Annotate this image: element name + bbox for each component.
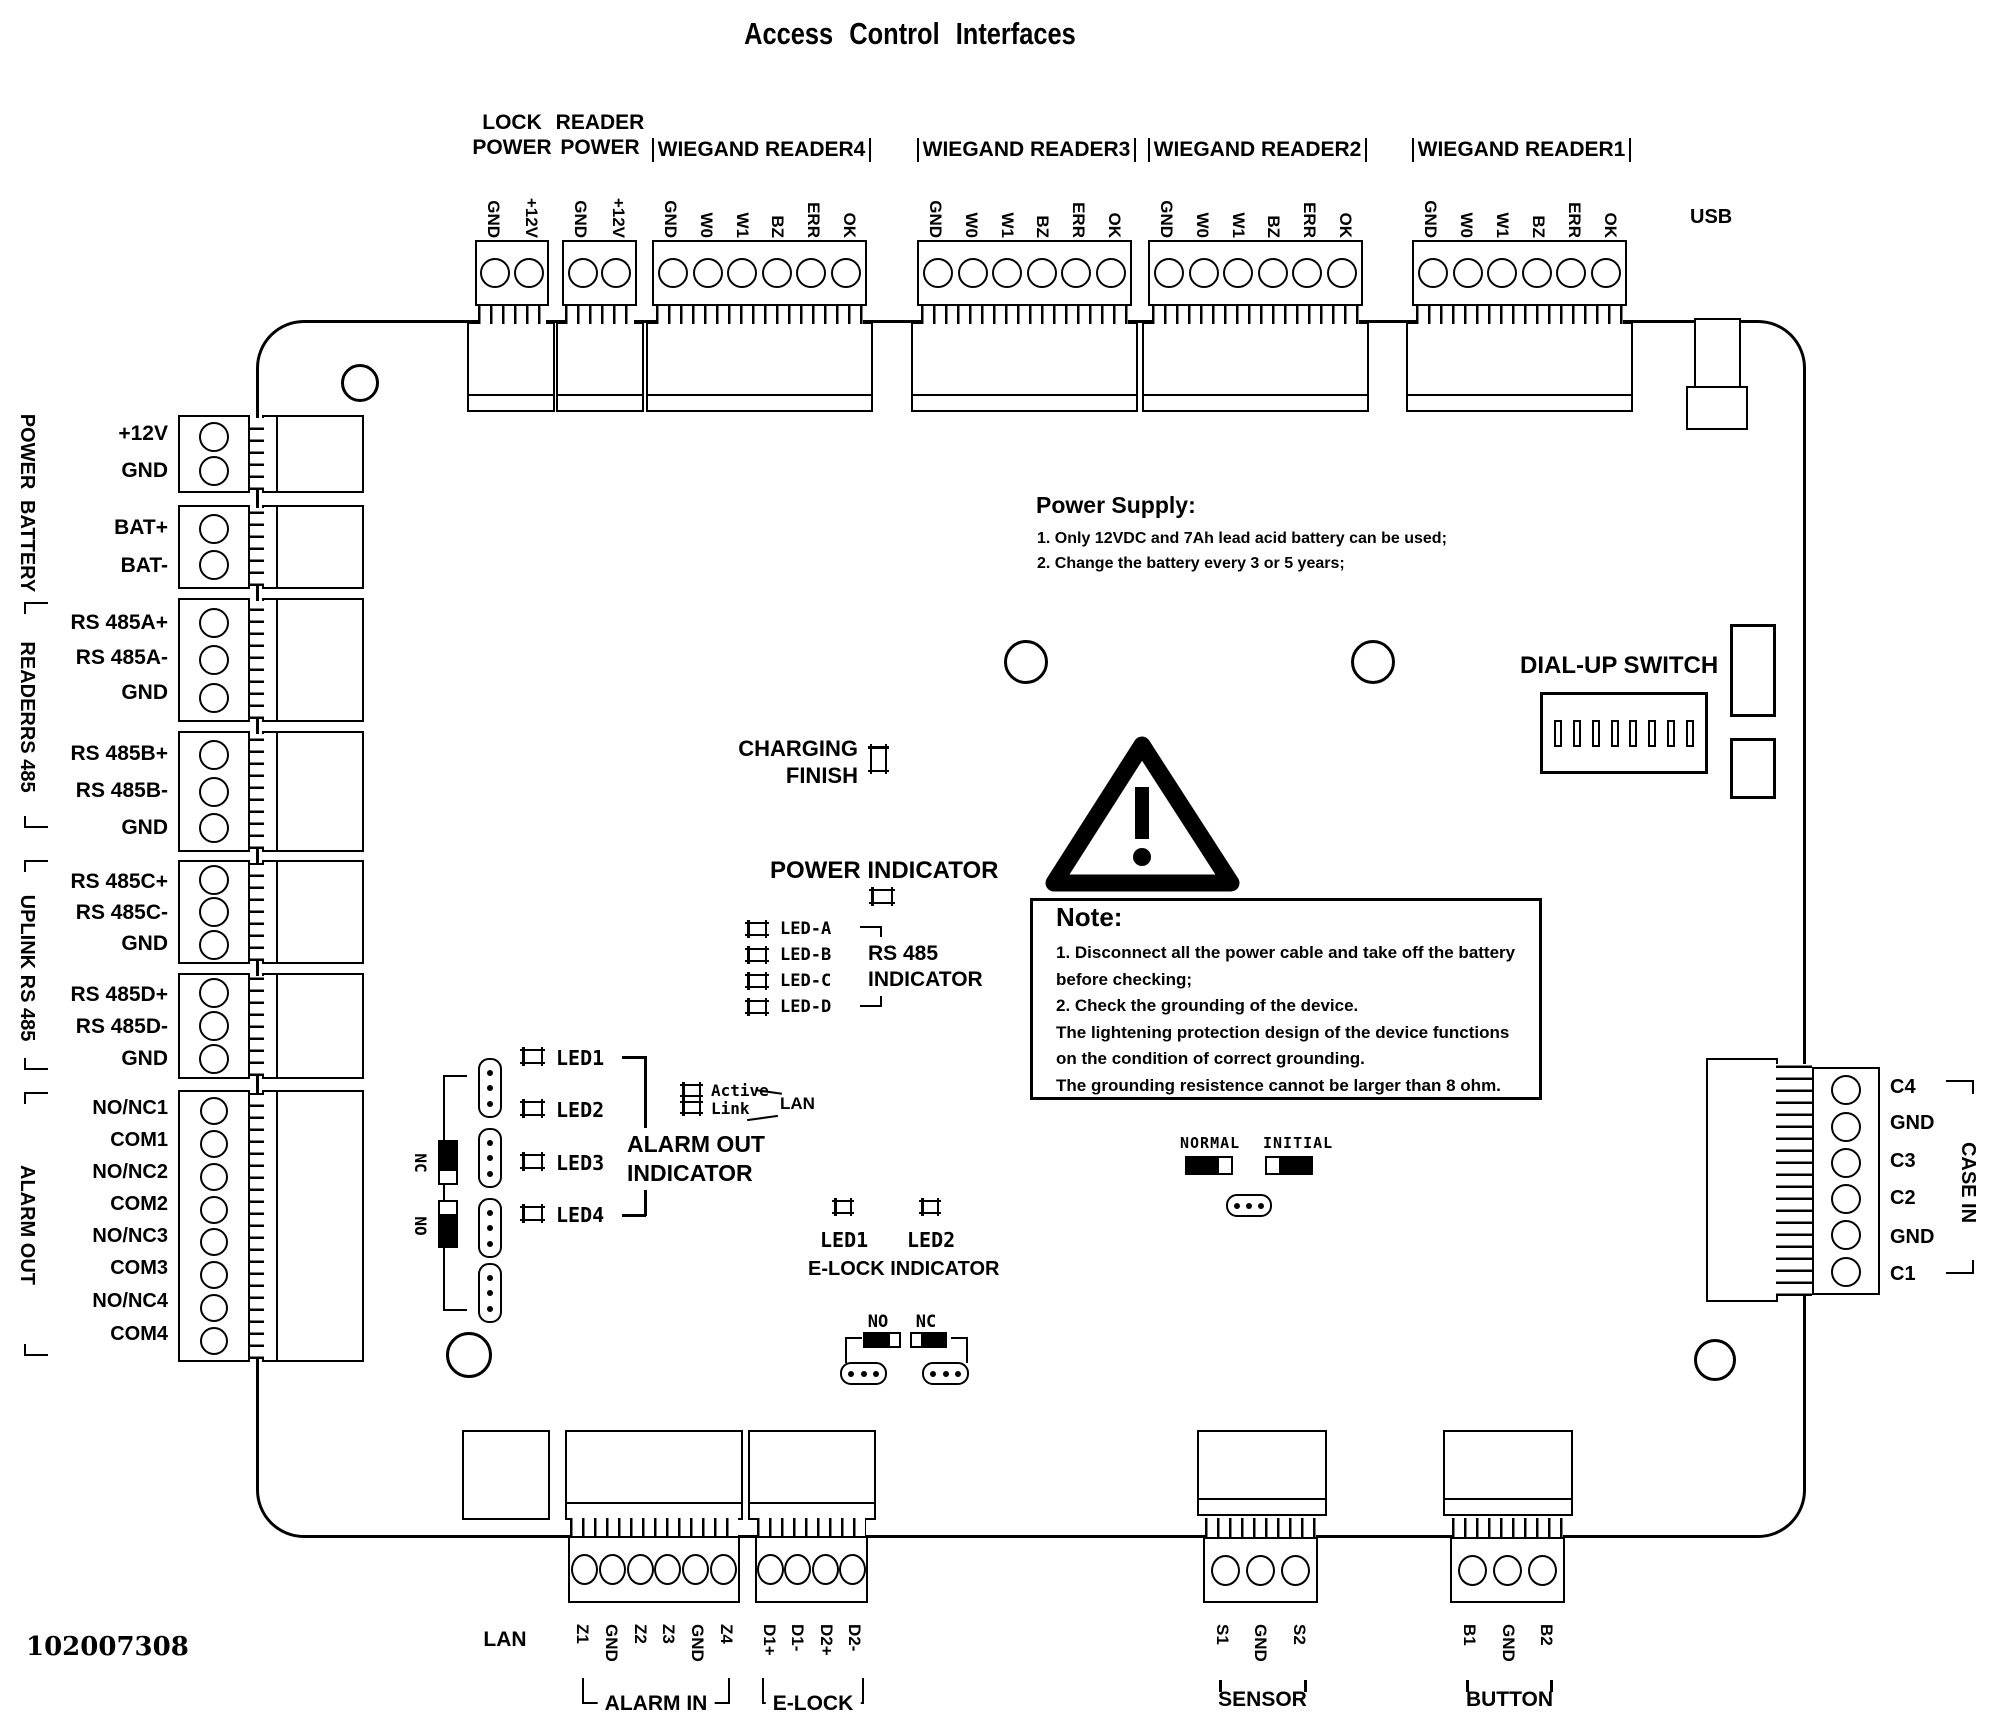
pin-label: +12V	[608, 150, 628, 238]
led-b-icon	[745, 948, 769, 962]
mode-jumper	[1226, 1194, 1272, 1217]
pin-label: COM2	[20, 1193, 168, 1216]
bracket-mark	[860, 996, 882, 1007]
lan-active-led-icon	[680, 1084, 703, 1097]
led-d-icon	[745, 1000, 769, 1014]
mounting-hole	[1351, 640, 1395, 684]
power-supply-item: 2. Change the battery every 3 or 5 years…	[1037, 555, 1345, 573]
battery-socket	[262, 505, 364, 589]
pin-label: OK	[1335, 150, 1355, 238]
rs485-indicator-label: INDICATOR	[868, 968, 983, 992]
pin-label: GND	[20, 681, 168, 705]
mounting-hole	[446, 1332, 492, 1378]
pin-label: W1	[1492, 150, 1512, 238]
sensor-terminal	[1203, 1537, 1318, 1603]
rs485c-socket	[262, 860, 364, 964]
pin-label: RS 485C+	[20, 870, 168, 894]
pin-label: GND	[660, 150, 680, 238]
bracket-mark	[845, 1337, 862, 1363]
pin-label: C2	[1890, 1187, 1916, 1210]
pin-label: RS 485D+	[20, 983, 168, 1007]
pin-label: BAT-	[20, 554, 168, 578]
e-lock-terminal	[755, 1536, 868, 1603]
no-label: NO	[410, 1203, 430, 1249]
rs485d-socket	[262, 973, 364, 1079]
pin-label: GND	[570, 150, 590, 238]
charging-finish-label: CHARGINGFINISH	[700, 735, 858, 789]
alarm2-jumper	[478, 1128, 502, 1188]
button-terminal	[1450, 1537, 1565, 1603]
alarm-in-socket	[565, 1430, 743, 1520]
pin-label: RS 485D-	[20, 1015, 168, 1039]
wiegand4-socket	[646, 322, 873, 412]
led2-label: LED2	[556, 1098, 604, 1122]
normal-label: NORMAL	[1180, 1134, 1240, 1152]
connector-teeth	[1452, 1518, 1563, 1538]
pin-label: OK	[1600, 150, 1620, 238]
pin-label: RS 485A-	[20, 646, 168, 670]
pin-label: COM1	[20, 1129, 168, 1152]
sensor-socket	[1197, 1430, 1327, 1516]
connector-teeth	[570, 1518, 738, 1538]
alarm-in-label: ALARM IN	[598, 1692, 715, 1716]
pin-label: GND	[20, 816, 168, 840]
dial-up-switch-label: DIAL-UP SWITCH	[1520, 652, 1718, 680]
e-lock-bracket: E-LOCK	[762, 1678, 864, 1704]
lan-link-led-icon	[680, 1101, 703, 1114]
pin-label: GND	[483, 150, 503, 238]
alarm-in-bracket: ALARM IN	[582, 1678, 730, 1704]
led-d-label: LED-D	[780, 997, 831, 1017]
pin-label: BAT+	[20, 516, 168, 540]
case-in-socket	[1706, 1058, 1778, 1302]
dip-slot	[1686, 720, 1694, 747]
pin-label: W0	[696, 150, 716, 238]
dip-slot	[1667, 720, 1675, 747]
e-lock-label: E-LOCK	[766, 1692, 861, 1716]
pin-label: NO/NC1	[20, 1097, 168, 1120]
led-c-label: LED-C	[780, 971, 831, 991]
warning-icon	[1045, 735, 1240, 893]
elock-nc-switch	[910, 1332, 947, 1348]
pin-label: NO/NC4	[20, 1290, 168, 1313]
pin-label: W0	[1456, 150, 1476, 238]
pin-label: W0	[1192, 150, 1212, 238]
initial-switch	[1265, 1156, 1313, 1175]
button-label: BUTTON	[1462, 1688, 1557, 1712]
pin-label: BZ	[1263, 150, 1283, 238]
connector-teeth	[565, 304, 634, 324]
mounting-hole	[1004, 640, 1048, 684]
pin-label: BZ	[1528, 150, 1548, 238]
led4-label: LED4	[556, 1203, 604, 1227]
page-title: Access Control Interfaces	[656, 16, 1164, 52]
lock-power-socket	[467, 322, 555, 412]
rs485b-socket	[262, 731, 364, 852]
alarm-out-terminal	[178, 1090, 250, 1362]
group-label-uplink-rs485: UPLINK RS 485	[17, 866, 37, 1070]
rs485-indicator-label: RS 485	[868, 942, 938, 966]
rs485d-terminal	[178, 973, 250, 1079]
pin-label: C4	[1890, 1076, 1916, 1099]
elock-no-label: NO	[858, 1312, 898, 1332]
battery-terminal	[178, 505, 250, 589]
power-terminal	[178, 415, 250, 493]
pin-label: NO/NC2	[20, 1161, 168, 1184]
pin-label: GND	[1156, 150, 1176, 238]
pin-label: C1	[1890, 1263, 1916, 1286]
dip-slot	[1648, 720, 1656, 747]
e-lock-indicator-label: E-LOCK INDICATOR	[808, 1258, 999, 1281]
elock-led2-label: LED2	[907, 1228, 955, 1252]
sensor-label: SENSOR	[1215, 1688, 1310, 1712]
lock-power-terminal	[475, 240, 549, 306]
wiegand3-socket	[911, 322, 1138, 412]
reader-power-socket	[556, 322, 644, 412]
usb-label: USB	[1690, 206, 1732, 229]
pin-label: COM3	[20, 1257, 168, 1280]
alarm4-jumper	[478, 1263, 502, 1323]
pin-label: RS 485C-	[20, 901, 168, 925]
rs485c-terminal	[178, 860, 250, 964]
rs485b-terminal	[178, 731, 250, 852]
pin-label: GND	[20, 1047, 168, 1071]
group-label-battery: BATTERY	[17, 500, 37, 592]
dip-slot	[1629, 720, 1637, 747]
nc-label: NC	[410, 1141, 430, 1185]
pin-label: OK	[839, 150, 859, 238]
dip-slot	[1573, 720, 1581, 747]
elock-nc-jumper	[922, 1362, 969, 1385]
pin-label: GND	[1890, 1226, 1934, 1249]
charging-led-icon	[870, 744, 887, 774]
pin-label: ERR	[1299, 150, 1319, 238]
led-c-icon	[745, 974, 769, 988]
pin-label: RS 485B-	[20, 779, 168, 803]
pin-label: ERR	[1564, 150, 1584, 238]
led4-icon	[520, 1206, 545, 1221]
connector-teeth	[757, 1518, 866, 1538]
bracket-mark	[951, 1337, 968, 1363]
usb-connector-base	[1686, 386, 1748, 430]
wiegand3-terminal	[917, 240, 1132, 306]
wiegand2-socket	[1142, 322, 1369, 412]
alarm1-jumper	[478, 1058, 502, 1118]
note-text: 1. Disconnect all the power cable and ta…	[1056, 940, 1515, 1099]
initial-label: INITIAL	[1263, 1134, 1333, 1152]
pin-label: BZ	[767, 150, 787, 238]
elock-nc-label: NC	[906, 1312, 946, 1332]
pin-label: W1	[732, 150, 752, 238]
lock-power-header: LOCKPOWER	[462, 110, 562, 160]
button-socket	[1443, 1430, 1573, 1516]
rs485a-socket	[262, 598, 364, 722]
bracket-mark	[1946, 1080, 1974, 1094]
indicator-bracket	[622, 1214, 646, 1217]
component-block	[1730, 624, 1776, 717]
alarm-out-socket	[262, 1090, 364, 1362]
mounting-hole	[341, 364, 379, 402]
elock-no-switch	[863, 1332, 901, 1348]
alarm-out-indicator-label: ALARM OUTINDICATOR	[620, 1128, 785, 1190]
wiegand2-terminal	[1148, 240, 1363, 306]
normal-switch	[1185, 1156, 1233, 1175]
led2-icon	[520, 1101, 545, 1116]
e-lock-socket	[748, 1430, 876, 1520]
pin-label: GND	[20, 932, 168, 956]
connector-teeth	[656, 304, 863, 324]
pin-label: RS 485A+	[20, 611, 168, 635]
pin-label: GND	[20, 459, 168, 483]
bracket-mark	[1946, 1260, 1974, 1274]
pin-label: RS 485B+	[20, 742, 168, 766]
nc-position-indicator	[438, 1140, 458, 1185]
alarm-in-terminal	[568, 1536, 740, 1603]
reader-power-header: READERPOWER	[550, 110, 650, 160]
access-control-diagram: Access Control Interfaces LOCKPOWER READ…	[0, 0, 1998, 1727]
rs485a-terminal	[178, 598, 250, 722]
group-label-case-in: CASE IN	[1958, 1085, 1978, 1280]
pin-label: NO/NC3	[20, 1225, 168, 1248]
led-b-label: LED-B	[780, 945, 831, 965]
case-in-terminal	[1812, 1067, 1880, 1295]
connector-teeth	[921, 304, 1128, 324]
connector-teeth	[1152, 304, 1359, 324]
reader-power-terminal	[562, 240, 637, 306]
dip-slot	[1592, 720, 1600, 747]
pin-label: ERR	[1068, 150, 1088, 238]
note-title: Note:	[1056, 902, 1122, 933]
led1-icon	[520, 1049, 545, 1064]
lan-link-label: Link	[711, 1099, 750, 1118]
pin-label: W0	[961, 150, 981, 238]
led3-icon	[520, 1154, 545, 1169]
pin-label: C3	[1890, 1150, 1916, 1173]
pin-label: +12V	[521, 150, 541, 238]
jumper-bracket	[443, 1075, 467, 1311]
usb-connector	[1694, 318, 1741, 388]
power-socket	[262, 415, 364, 493]
connector-teeth	[1776, 1064, 1812, 1296]
pin-label: GND	[1890, 1112, 1934, 1135]
alarm3-jumper	[478, 1198, 502, 1258]
pin-label: +12V	[20, 422, 168, 446]
wiegand-reader1-header: WIEGAND READER1	[1412, 138, 1631, 162]
led-a-label: LED-A	[780, 919, 831, 939]
connector-teeth	[478, 304, 546, 324]
pin-label: COM4	[20, 1323, 168, 1346]
wiegand1-terminal	[1412, 240, 1627, 306]
dip-slot	[1554, 720, 1562, 747]
lan-leds-label: LAN	[780, 1094, 815, 1114]
led-a-icon	[745, 922, 769, 936]
connector-teeth	[1416, 304, 1623, 324]
lan-port	[462, 1430, 550, 1520]
connector-teeth	[1205, 1518, 1316, 1538]
led1-label: LED1	[556, 1046, 604, 1070]
elock-led1-icon	[832, 1200, 854, 1214]
component-block	[1730, 738, 1776, 799]
pin-label: BZ	[1032, 150, 1052, 238]
lan-label: LAN	[470, 1628, 540, 1652]
elock-led1-label: LED1	[820, 1228, 868, 1252]
pin-label: GND	[1420, 150, 1440, 238]
pin-label: W1	[1228, 150, 1248, 238]
wiegand4-terminal	[652, 240, 867, 306]
pin-label: ERR	[803, 150, 823, 238]
power-indicator-label: POWER INDICATOR	[770, 857, 998, 885]
doc-number: 102007308	[26, 1632, 189, 1662]
mounting-hole	[1694, 1339, 1736, 1381]
power-supply-title: Power Supply:	[1036, 492, 1196, 519]
no-position-indicator	[438, 1200, 458, 1248]
led3-label: LED3	[556, 1151, 604, 1175]
power-supply-item: 1. Only 12VDC and 7Ah lead acid battery …	[1037, 530, 1447, 548]
bracket-mark	[860, 926, 882, 937]
elock-led2-icon	[919, 1200, 941, 1214]
pin-label: OK	[1104, 150, 1124, 238]
wiegand1-socket	[1406, 322, 1633, 412]
pin-label: GND	[925, 150, 945, 238]
indicator-bracket	[622, 1056, 646, 1059]
elock-no-jumper	[840, 1362, 887, 1385]
power-led-icon	[869, 889, 895, 904]
dip-slot	[1611, 720, 1619, 747]
dip-switch	[1540, 692, 1708, 774]
pin-label: W1	[997, 150, 1017, 238]
